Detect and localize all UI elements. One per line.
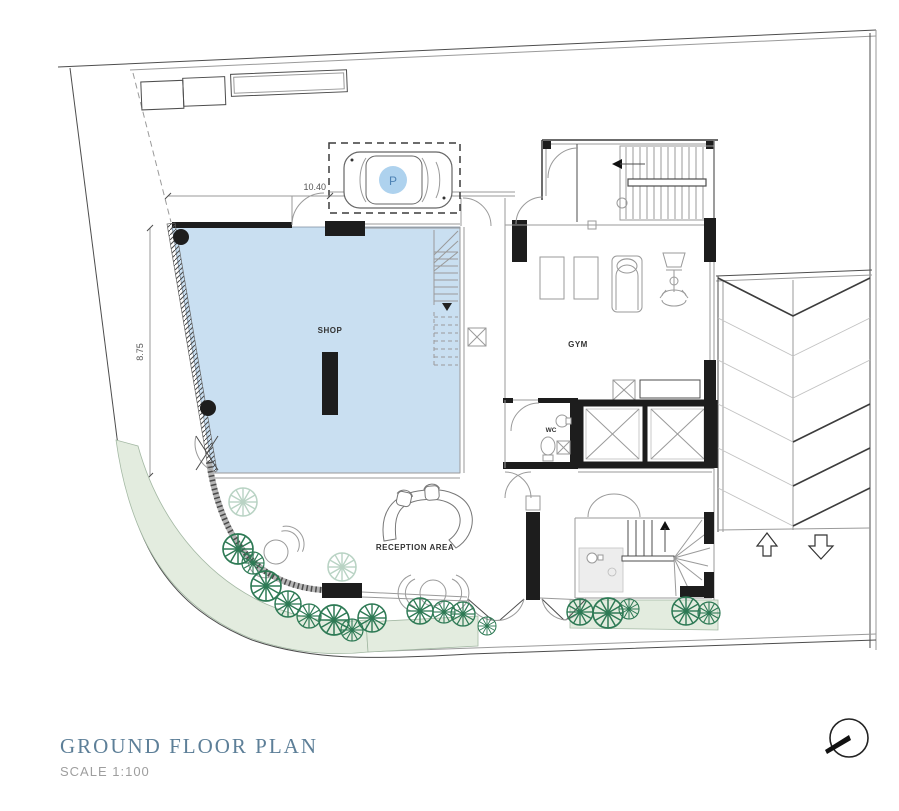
north-indicator <box>825 719 868 757</box>
shop-pier <box>325 221 365 236</box>
column-round <box>173 229 189 245</box>
elevator-shafts <box>578 400 718 472</box>
treadmill-icon <box>612 256 642 312</box>
double-door-swing <box>588 494 614 517</box>
shop-label: SHOP <box>318 326 343 335</box>
shop-room: SHOP <box>167 193 464 478</box>
canopy-lines <box>168 192 515 226</box>
yard-box-left <box>141 80 184 110</box>
wall-pier <box>526 512 540 600</box>
parking-symbol: P <box>389 174 397 188</box>
gym-mat <box>574 257 598 299</box>
shop-wall-top <box>172 222 292 228</box>
dimension-depth: 8.75 <box>135 343 145 361</box>
column-round <box>200 400 216 416</box>
double-door-swing <box>614 494 640 517</box>
shop-door-swing <box>292 193 324 225</box>
gym-label: GYM <box>568 340 588 349</box>
ramp <box>716 270 872 559</box>
wall-segment <box>704 400 718 468</box>
wc-label: WC <box>546 427 557 434</box>
stair-handrail <box>622 556 674 561</box>
entry-door-swing <box>516 197 543 224</box>
gym-mat <box>540 257 564 299</box>
planting-strip <box>366 616 478 652</box>
wall-segment <box>704 218 716 262</box>
wc-room: WC <box>503 398 578 469</box>
shop-floor <box>172 227 460 473</box>
dimension-frontage: 10.40 <box>303 182 326 192</box>
wall-segment <box>704 512 714 544</box>
north-yard-structures <box>141 70 348 110</box>
desk-chair <box>395 489 414 508</box>
floor-plan-drawing: P 10.40 8.75 SHOP <box>0 0 899 811</box>
vestibule-door-swing <box>548 148 578 178</box>
desk-chair <box>423 484 440 501</box>
wall-segment <box>704 572 714 598</box>
sink-icon <box>556 415 571 427</box>
parking-spot: P <box>329 143 460 213</box>
exercise-bike-icon <box>660 253 688 306</box>
stair-handrail <box>628 179 706 186</box>
shop-pillar <box>322 352 338 415</box>
yard-box-right <box>183 77 226 107</box>
compass-needle-icon <box>825 735 851 754</box>
main-stair-top <box>612 146 714 220</box>
wall-stub <box>322 583 362 598</box>
corridor <box>463 198 540 600</box>
plan-title: GROUND FLOOR PLAN <box>60 734 318 758</box>
toilet-icon <box>541 437 555 461</box>
title-block: GROUND FLOOR PLAN SCALE 1:100 <box>60 734 318 779</box>
stair-room-bottom <box>575 494 714 598</box>
trees-faded <box>229 488 356 581</box>
ramp-up-arrow-icon <box>757 533 777 556</box>
ramp-down-arrow-icon <box>809 535 833 559</box>
wall-pier <box>512 220 527 262</box>
reception-label: RECEPTION AREA <box>376 543 454 552</box>
wall-segment <box>704 360 716 400</box>
plan-scale: SCALE 1:100 <box>60 764 150 779</box>
floor-plan-canvas: P 10.40 8.75 SHOP <box>0 0 899 811</box>
wall-segment <box>680 586 706 597</box>
setback-line <box>133 73 171 222</box>
wc-wall <box>503 462 578 469</box>
dumbbell-rack <box>640 380 700 398</box>
wc-door-swing <box>511 403 539 431</box>
corridor-door-swing <box>463 198 491 226</box>
